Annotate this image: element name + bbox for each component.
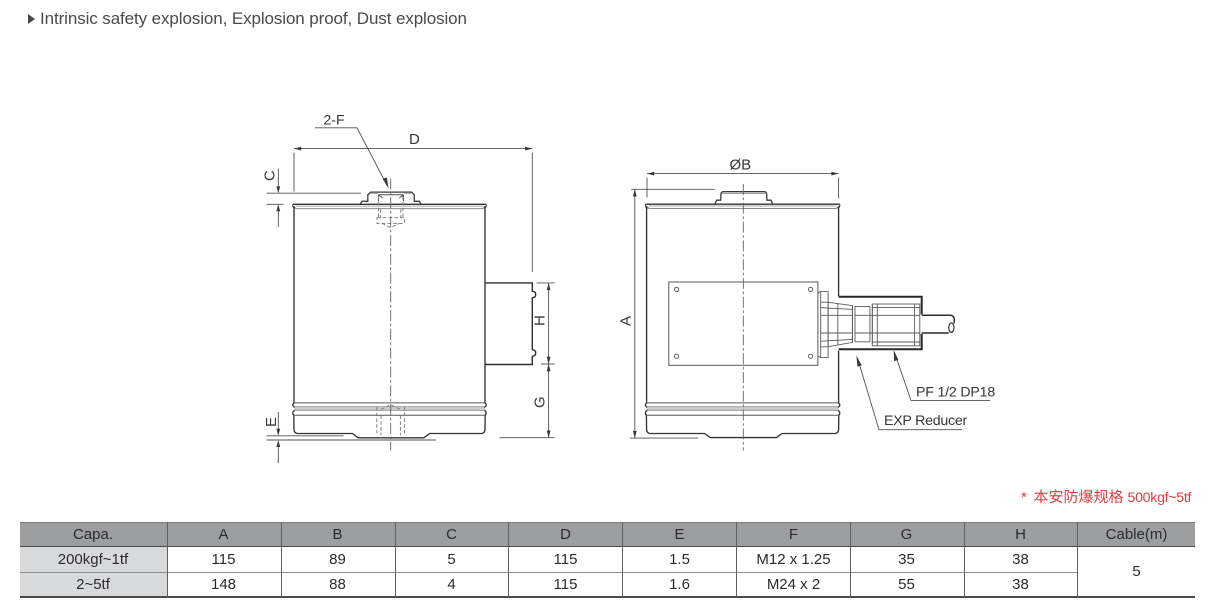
svg-text:E: E [263, 417, 280, 427]
svg-text:H: H [532, 315, 549, 326]
svg-text:G: G [532, 396, 549, 408]
svg-text:*: * [1021, 489, 1027, 506]
svg-text:PF 1/2 DP18: PF 1/2 DP18 [916, 385, 995, 401]
svg-text:D: D [409, 131, 420, 148]
svg-text:EXP Reducer: EXP Reducer [884, 413, 967, 429]
svg-text:2-F: 2-F [324, 111, 345, 127]
svg-text:500kgf~5tf: 500kgf~5tf [1128, 490, 1192, 506]
svg-text:C: C [262, 170, 279, 181]
svg-text:A: A [618, 316, 635, 326]
svg-text:ØB: ØB [730, 157, 752, 174]
